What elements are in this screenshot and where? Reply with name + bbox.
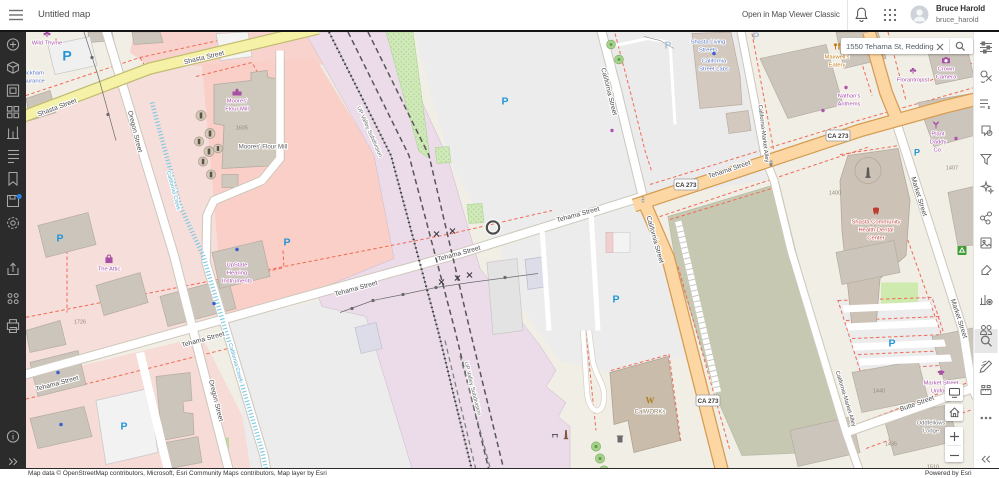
svg-text:W: W — [646, 395, 655, 405]
svg-text:Lodge: Lodge — [923, 428, 939, 434]
svg-text:1435: 1435 — [885, 441, 897, 447]
svg-text:Maxwell's: Maxwell's — [825, 54, 850, 60]
svg-text:P: P — [612, 293, 619, 305]
svg-text:Instruments: Instruments — [222, 278, 252, 284]
svg-text:Hearing: Hearing — [227, 270, 247, 276]
svg-text:Shasta Living: Shasta Living — [691, 39, 726, 45]
svg-text:Shasta Community: Shasta Community — [852, 219, 901, 225]
svg-text:Florantropist: Florantropist — [897, 77, 930, 83]
svg-text:P: P — [914, 147, 920, 157]
svg-text:Moores' Flour Mill: Moores' Flour Mill — [239, 143, 288, 150]
svg-text:Anthems: Anthems — [838, 101, 861, 107]
svg-text:1440: 1440 — [873, 388, 885, 394]
svg-text:P: P — [888, 337, 895, 349]
svg-text:Street Labs: Street Labs — [699, 66, 729, 72]
svg-text:Plant: Plant — [931, 131, 945, 137]
svg-text:1400: 1400 — [829, 190, 841, 196]
svg-text:CA 273: CA 273 — [827, 133, 849, 140]
svg-text:P: P — [752, 32, 759, 43]
svg-text:Oddfellows: Oddfellows — [917, 420, 946, 426]
svg-text:CA 273: CA 273 — [675, 182, 697, 189]
svg-text:Wild Thyme: Wild Thyme — [32, 40, 63, 46]
svg-text:Crown: Crown — [938, 66, 955, 72]
svg-text:Camera: Camera — [936, 74, 957, 80]
svg-text:CalWORKs: CalWORKs — [635, 409, 666, 415]
svg-text:1726: 1726 — [74, 319, 86, 325]
svg-text:P: P — [120, 420, 127, 432]
svg-text:1605: 1605 — [236, 125, 248, 131]
svg-text:CA 273: CA 273 — [697, 398, 719, 405]
svg-text:P: P — [56, 232, 63, 244]
svg-text:Insurance: Insurance — [26, 78, 45, 84]
svg-text:Health Dental: Health Dental — [858, 227, 893, 233]
svg-text:Eatery: Eatery — [829, 62, 846, 68]
svg-text:P: P — [283, 236, 290, 248]
svg-text:P: P — [62, 47, 71, 63]
svg-text:UpState: UpState — [227, 262, 248, 268]
svg-text:Moores': Moores' — [227, 98, 247, 104]
svg-text:Flour Mill: Flour Mill — [225, 106, 249, 112]
svg-text:Center: Center — [867, 235, 884, 241]
svg-text:Wickham: Wickham — [26, 70, 44, 76]
svg-text:P: P — [664, 39, 671, 51]
svg-text:P: P — [501, 95, 508, 107]
svg-text:The Attic: The Attic — [98, 266, 121, 272]
svg-text:Nathan's: Nathan's — [838, 93, 861, 99]
svg-text:1407: 1407 — [946, 165, 958, 171]
svg-text:Daddy: Daddy — [930, 139, 947, 145]
svg-text:Co.: Co. — [933, 147, 942, 153]
svg-text:California: California — [702, 58, 727, 64]
